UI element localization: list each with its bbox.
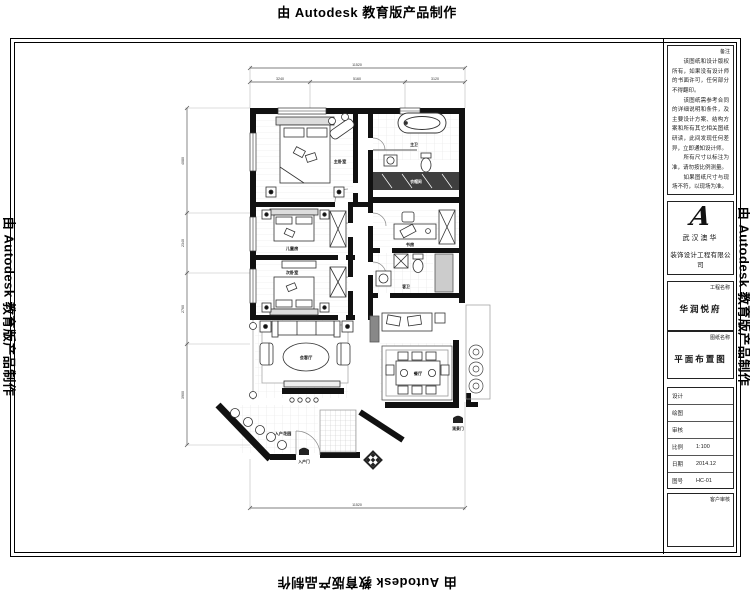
toilet (421, 153, 431, 172)
dim-top-seg-3: 3120 (431, 77, 439, 81)
field-row-number: 图号 HC-01 (668, 473, 733, 489)
room-label-second-bedroom: 次卧室 (286, 269, 299, 276)
watermark-top: 由 Autodesk 教育版产品制作 (267, 2, 467, 21)
room-label-living-room: 会客厅 (300, 354, 313, 361)
client-review-label: 客户审核 (668, 494, 733, 503)
bathtub (398, 113, 446, 133)
field-row-scale: 比例 1:100 (668, 439, 733, 456)
project-box: 工程名称 华润悦府 (667, 281, 734, 331)
field-row-review: 审核 (668, 422, 733, 439)
room-label-children-room: 儿童房 (285, 245, 299, 252)
dim-left-seg-4: 3900 (181, 391, 185, 399)
drawing-name: 平面布置图 (668, 353, 733, 365)
dim-left-seg-3: 2760 (181, 305, 185, 313)
room-label-entry-garden: 入户花园 (274, 430, 292, 437)
floor-plan: 11520 3240 5160 3120 4080 2340 2760 3900… (170, 55, 520, 520)
view-door-icon (453, 416, 463, 423)
dim-top-seg-1: 3240 (276, 77, 284, 81)
room-label-dining-room: 餐厅 (413, 370, 423, 377)
field-row-draw: 绘图 (668, 405, 733, 422)
room-label-master-bedroom: 主卧室 (334, 158, 347, 165)
dim-left-seg-2: 2340 (181, 239, 185, 247)
field-label: 审核 (668, 426, 696, 434)
room-label-study: 书房 (406, 241, 414, 248)
company-logo: A (666, 202, 735, 232)
drawing-name-label: 图纸名称 (668, 332, 733, 341)
company-name-full: 装饰设计工程有限公司 (668, 249, 733, 269)
field-label: 日期 (668, 460, 696, 468)
field-row-date: 日期 2014.12 (668, 456, 733, 473)
dim-bottom-total: 11520 (352, 503, 362, 507)
field-label: 设计 (668, 392, 696, 400)
children-bed (262, 209, 346, 247)
drawing-page: 由 Autodesk 教育版产品制作 由 Autodesk 教育版产品制作 由 … (0, 0, 750, 594)
drawing-name-box: 图纸名称 平面布置图 (667, 331, 734, 379)
title-block: 备注 该图纸和设计版权所有，如果没有设计师的书面许可，任何部分不得翻印。 该图纸… (663, 39, 738, 554)
company-name-short: 武汉澳华 (668, 233, 733, 243)
sink (384, 155, 397, 166)
dim-top-seg-2: 5160 (353, 77, 361, 81)
field-value: HC-01 (696, 478, 712, 484)
daybed (370, 313, 445, 342)
room-label-guest-bath: 客卫 (401, 284, 410, 289)
client-review-box: 客户审核 (667, 493, 734, 547)
field-label: 图号 (668, 477, 696, 485)
project-label: 工程名称 (668, 282, 733, 291)
field-label: 比例 (668, 443, 696, 451)
room-label-cloakroom: 衣帽间 (410, 179, 422, 184)
notes-box: 备注 该图纸和设计版权所有，如果没有设计师的书面许可，任何部分不得翻印。 该图纸… (667, 45, 734, 195)
notes-header: 备注 (668, 46, 733, 55)
company-box: A 武汉澳华 装饰设计工程有限公司 (667, 201, 734, 275)
floor-medallion (363, 450, 383, 470)
foyer-tiles (320, 410, 356, 452)
room-label-view-door: 观景门 (451, 426, 464, 431)
watermark-bottom: 由 Autodesk 教育版产品制作 (267, 574, 467, 593)
field-label: 绘图 (668, 409, 696, 417)
room-label-master-bath: 主卫 (410, 142, 418, 147)
room-label-entry-door: 入户门 (297, 459, 310, 464)
dim-top-total: 11520 (352, 63, 362, 67)
balcony (466, 305, 490, 399)
dim-left-seg-1: 4080 (181, 157, 185, 165)
notes-text: 该图纸和设计版权所有，如果没有设计师的书面许可，任何部分不得翻印。 该图纸需参考… (668, 55, 733, 196)
field-value: 2014.12 (696, 461, 716, 467)
fields-box: 设计 绘图 审核 比例 1:100 日期 2014.12 (667, 387, 734, 489)
field-value: 1:100 (696, 444, 710, 450)
field-row-design: 设计 (668, 388, 733, 405)
project-name: 华润悦府 (668, 303, 733, 315)
